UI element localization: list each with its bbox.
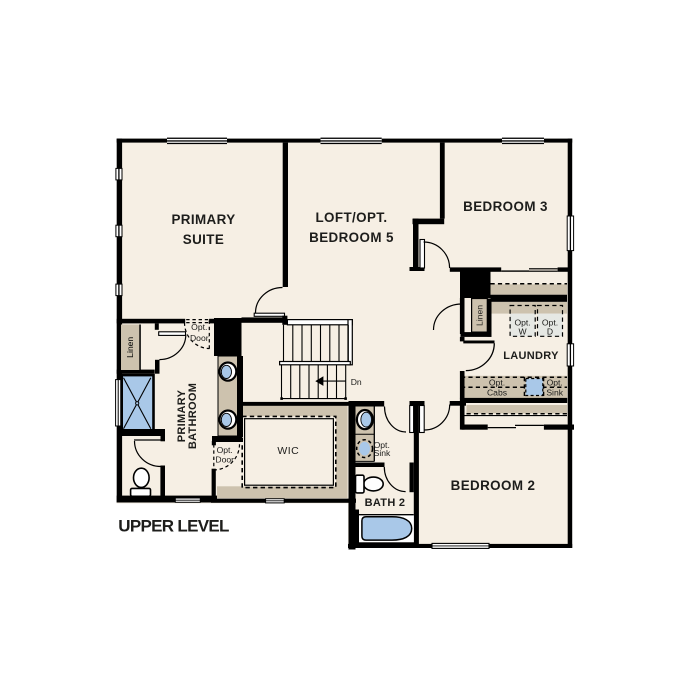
svg-text:BATH 2: BATH 2 <box>365 497 406 509</box>
svg-text:BATHROOM: BATHROOM <box>187 383 199 449</box>
svg-text:Opt.: Opt. <box>191 322 207 332</box>
svg-text:SUITE: SUITE <box>183 232 224 247</box>
svg-text:UPPER LEVEL: UPPER LEVEL <box>118 516 229 535</box>
svg-text:LOFT/OPT.: LOFT/OPT. <box>315 210 387 225</box>
svg-text:LAUNDRY: LAUNDRY <box>503 350 559 362</box>
svg-text:Cabs: Cabs <box>487 387 507 397</box>
svg-text:Door: Door <box>215 454 234 464</box>
svg-text:PRIMARY: PRIMARY <box>171 212 235 227</box>
svg-text:Opt.: Opt. <box>217 445 233 455</box>
svg-text:Door: Door <box>190 333 209 343</box>
svg-text:BEDROOM 5: BEDROOM 5 <box>309 230 394 245</box>
svg-text:W: W <box>519 326 528 336</box>
svg-text:Opt.: Opt. <box>547 378 563 388</box>
svg-text:WIC: WIC <box>277 445 299 457</box>
svg-text:Linen: Linen <box>125 337 135 358</box>
svg-text:D: D <box>547 326 553 336</box>
svg-text:Sink: Sink <box>546 387 563 397</box>
svg-text:BEDROOM 2: BEDROOM 2 <box>451 478 536 493</box>
svg-text:Sink: Sink <box>374 448 391 458</box>
svg-text:Opt.: Opt. <box>489 378 505 388</box>
svg-text:Linen: Linen <box>475 305 485 326</box>
svg-text:BEDROOM 3: BEDROOM 3 <box>463 199 548 214</box>
svg-text:Dn: Dn <box>351 377 362 387</box>
